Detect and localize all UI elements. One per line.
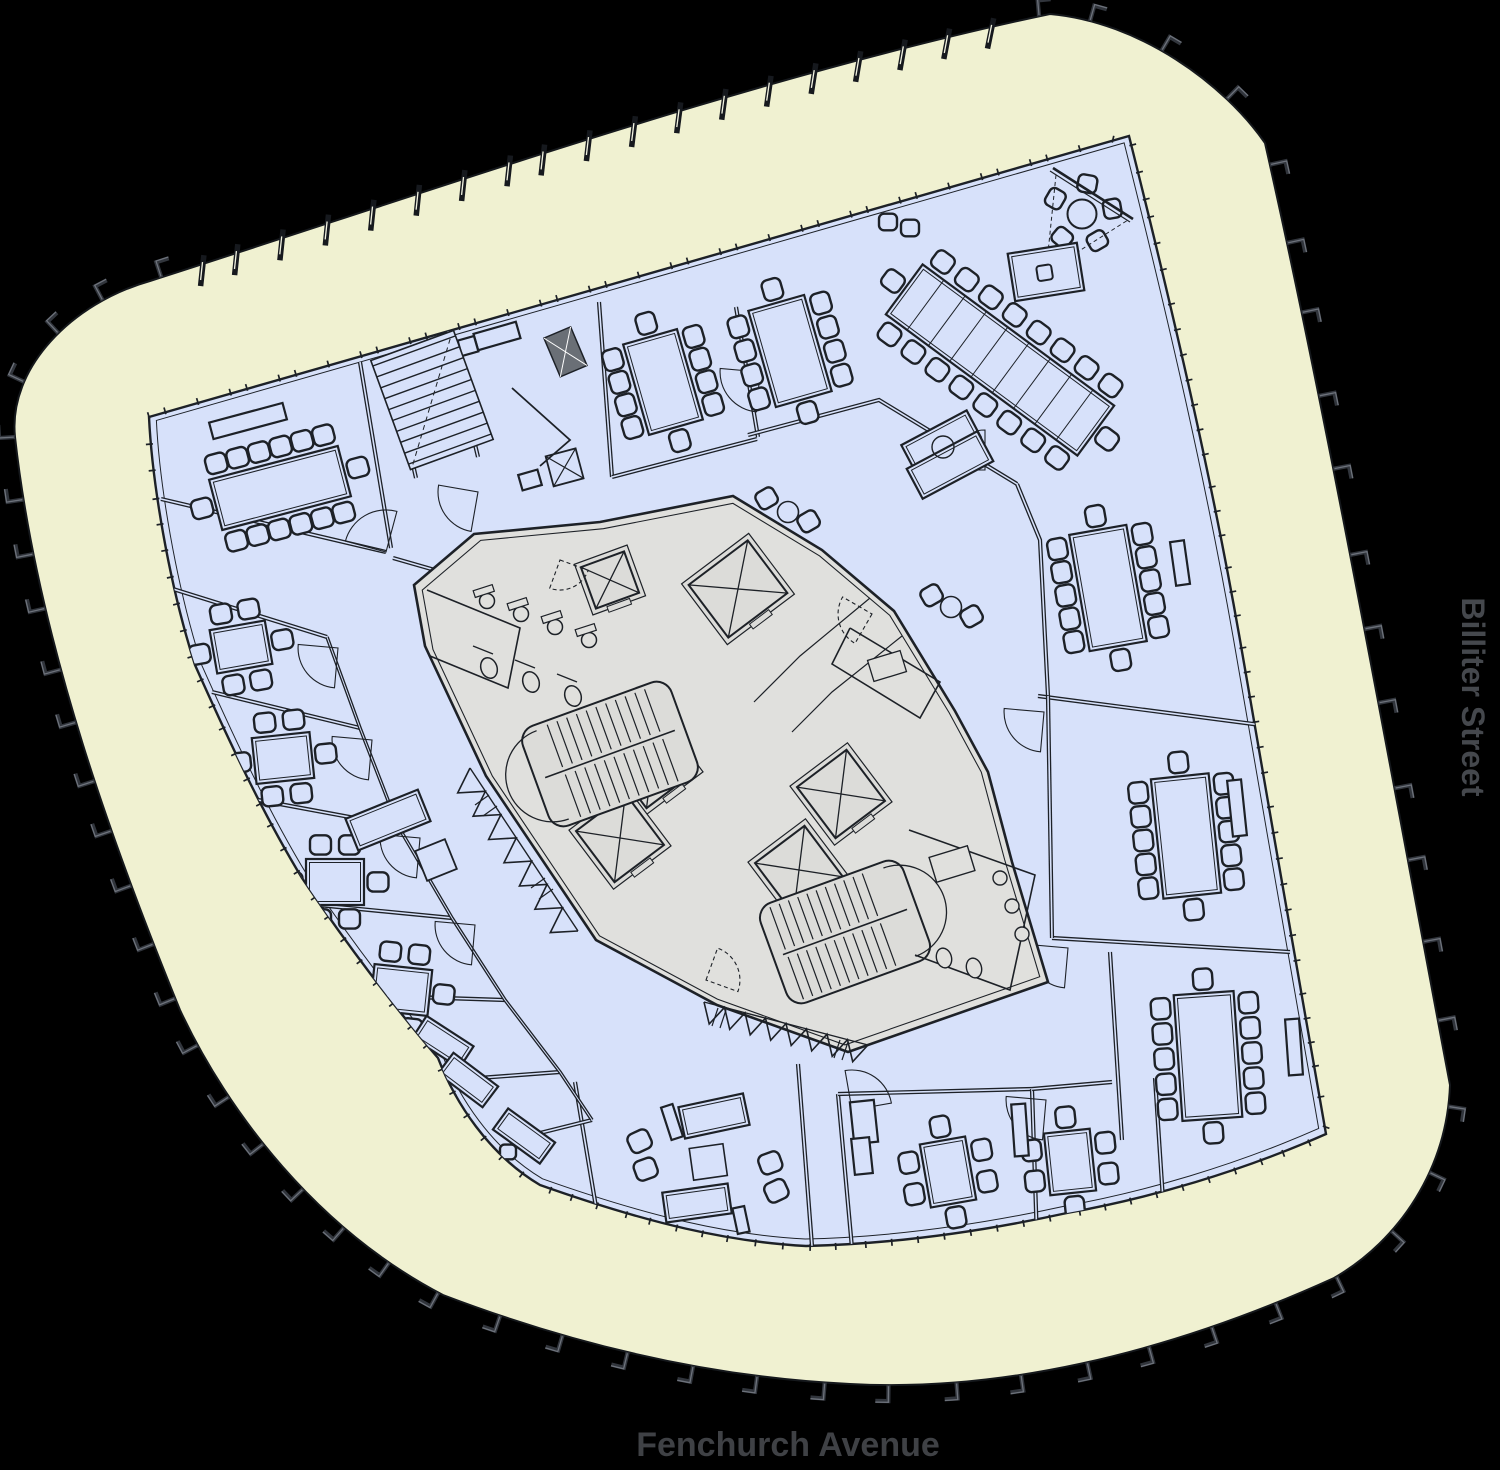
svg-text:Billiter Street: Billiter Street — [1455, 597, 1491, 797]
svg-text:Fenchurch Avenue: Fenchurch Avenue — [636, 1426, 940, 1464]
